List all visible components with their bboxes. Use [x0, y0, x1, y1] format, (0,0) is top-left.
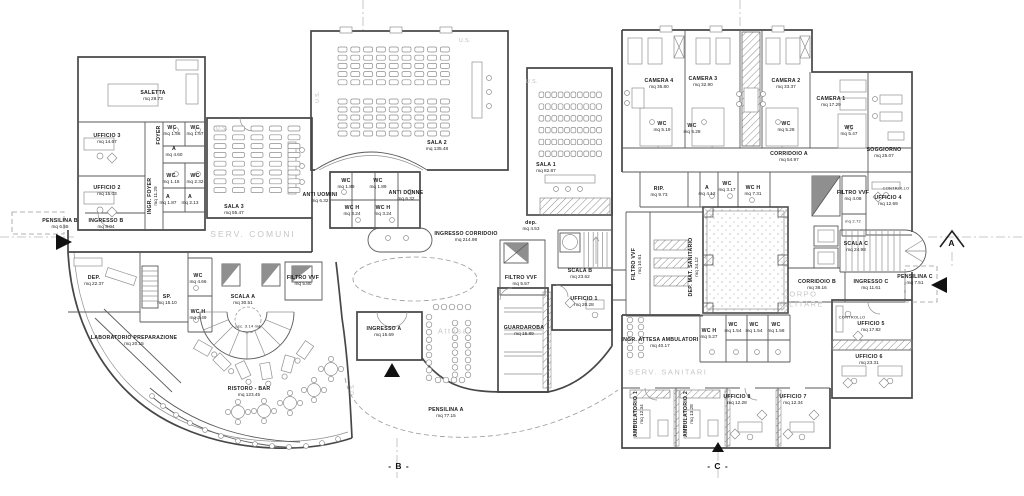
stair-a-icon — [142, 266, 294, 359]
section-arrow-up-icon — [384, 363, 400, 377]
section-arrow-left-icon — [931, 277, 947, 293]
section-arrow-up-small-icon — [712, 442, 724, 452]
stage-arch — [315, 152, 427, 170]
stair-b-icon — [560, 232, 607, 267]
filter-symbol-icon — [262, 264, 280, 286]
filter-symbol-icon — [292, 266, 312, 282]
lobby-floor-oval — [353, 257, 477, 301]
section-arrow-right-icon — [56, 234, 72, 250]
reception-desk — [368, 228, 432, 252]
section-a-chevron-icon — [940, 231, 964, 247]
canopy-outlines — [12, 212, 937, 437]
floor-plan-canvas: SALETTAmq 28.73UFFICIO 3mq 14.67UFFICIO … — [0, 0, 1024, 496]
filter-symbol-icon — [504, 243, 528, 263]
elevator-icon — [814, 226, 838, 268]
courtyard — [703, 207, 788, 313]
shaft-icon — [812, 176, 840, 216]
pilasters — [340, 26, 784, 33]
filter-symbol-icon — [222, 264, 240, 286]
floor-plan-drawing — [0, 0, 1024, 496]
